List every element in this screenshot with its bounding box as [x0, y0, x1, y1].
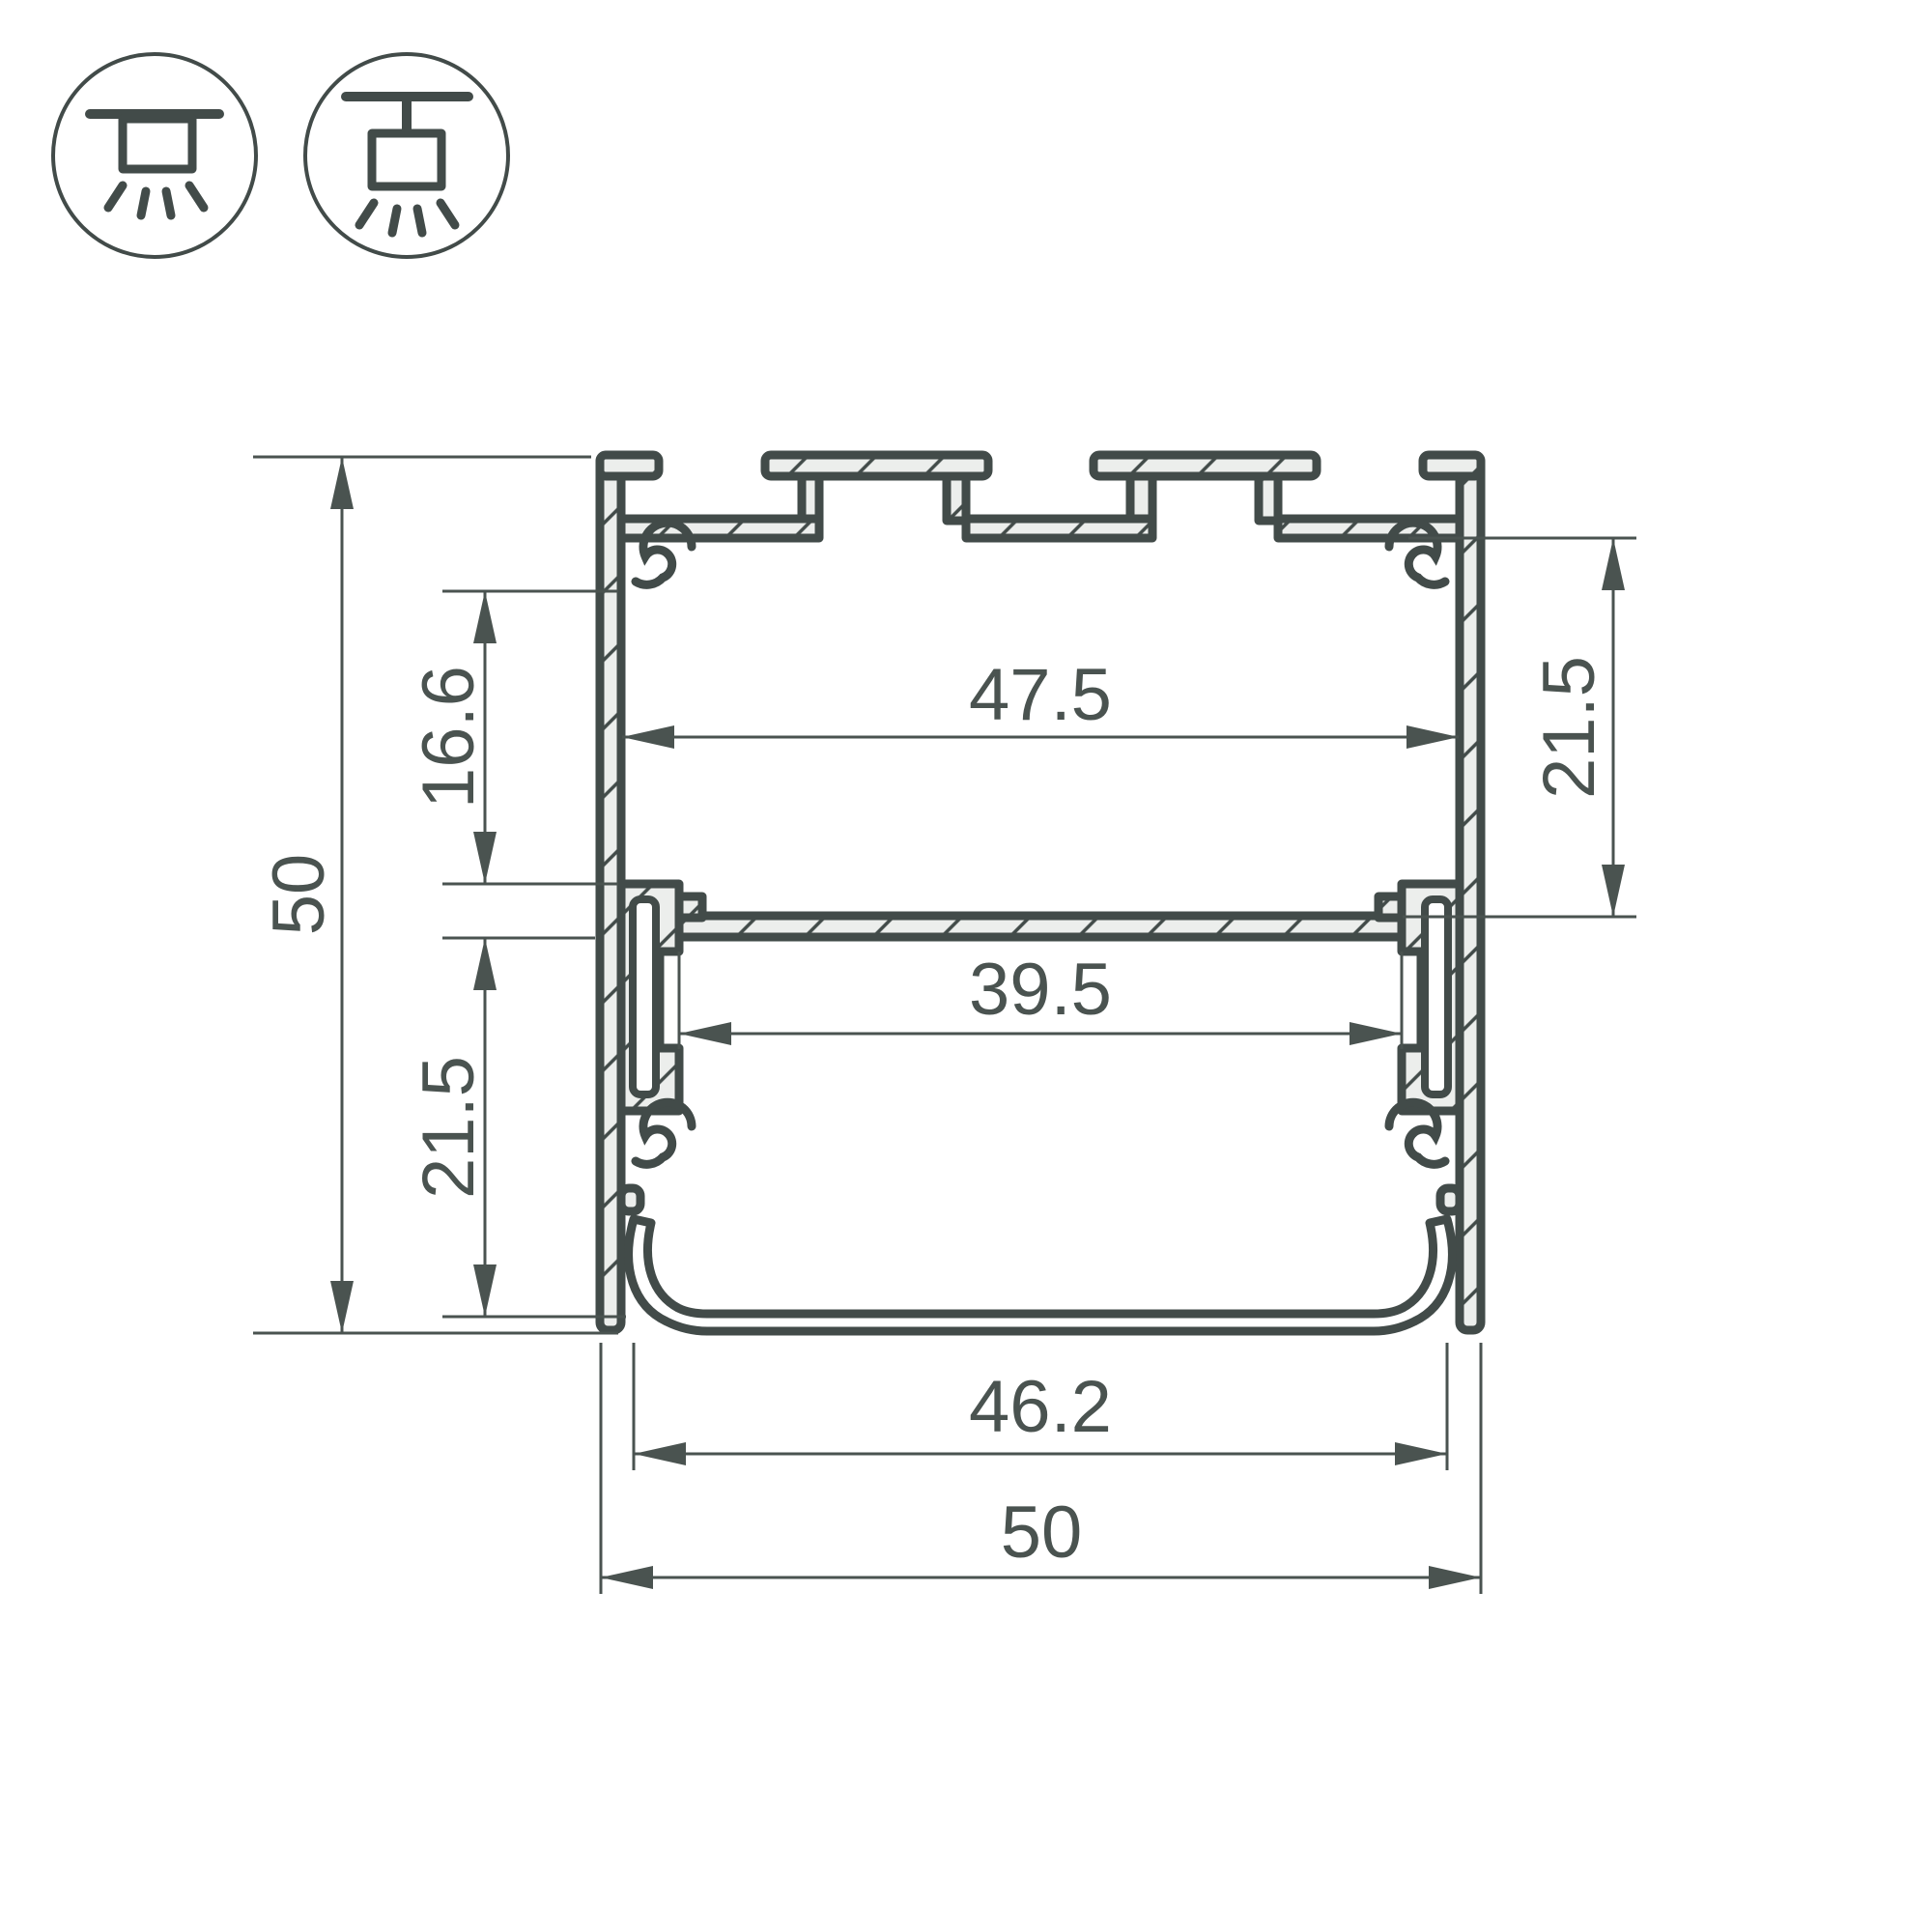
- clip-slot: [1425, 899, 1448, 1094]
- light-ray: [141, 191, 146, 215]
- arrowhead-icon: [679, 1022, 731, 1045]
- arrowhead-icon: [330, 457, 354, 509]
- dim-diffuser-width: 46.2: [634, 1343, 1447, 1470]
- light-ray: [108, 185, 123, 208]
- arrowhead-icon: [473, 591, 497, 643]
- diffuser-tooth: [1440, 1188, 1460, 1211]
- light-ray: [417, 209, 422, 233]
- light-ray: [189, 185, 204, 208]
- dim-right-inner-height-label: 21.5: [1528, 656, 1610, 799]
- arrowhead-icon: [473, 832, 497, 884]
- diffuser-tooth: [621, 1188, 640, 1211]
- dim-overall-height: 50: [253, 457, 618, 1333]
- arrowhead-icon: [1602, 538, 1625, 590]
- dim-overall-height-label: 50: [258, 854, 340, 936]
- profile-cross-section-drawing: 50 16.6 21.5 47.5: [0, 0, 1932, 1932]
- dim-right-inner-height: 21.5: [1403, 538, 1636, 917]
- surface-mount-icon: [53, 54, 256, 257]
- clip-slot: [633, 899, 656, 1094]
- top-cap-b: [1094, 455, 1317, 476]
- dim-led-shelf-width: 39.5: [679, 949, 1402, 1049]
- mounting-icons: [53, 54, 508, 257]
- cap-stem: [1130, 476, 1152, 521]
- cap-stem: [802, 476, 819, 521]
- top-web-mid: [966, 519, 1152, 538]
- light-ray: [359, 203, 374, 225]
- dim-top-inner-width: 47.5: [622, 654, 1459, 749]
- profile-section: [600, 455, 1481, 1331]
- led-shelf: [679, 916, 1402, 937]
- arrowhead-icon: [1406, 725, 1459, 749]
- dim-overall-width-label: 50: [1001, 1492, 1083, 1574]
- dim-diffuser-width-label: 46.2: [969, 1366, 1112, 1448]
- arrowhead-icon: [1602, 865, 1625, 917]
- arrowhead-icon: [473, 938, 497, 990]
- dim-lower-inner-height: 21.5: [408, 938, 626, 1317]
- arrowhead-icon: [622, 725, 674, 749]
- profile-box: [123, 119, 192, 169]
- top-cap-left: [600, 455, 659, 476]
- arrowhead-icon: [1429, 1566, 1481, 1589]
- dim-upper-inner-height-label: 16.6: [408, 666, 490, 809]
- arrowhead-icon: [330, 1281, 354, 1333]
- light-ray: [166, 191, 171, 215]
- dim-upper-inner-height: 16.6: [408, 591, 618, 884]
- profile-material: [600, 455, 1481, 1330]
- screw-bosses: [636, 523, 1445, 1164]
- top-cap-right: [1423, 455, 1481, 476]
- cap-riser: [947, 476, 966, 521]
- led-shelf-lip: [1378, 896, 1402, 918]
- light-ray: [392, 209, 397, 233]
- arrowhead-icon: [601, 1566, 653, 1589]
- arrowhead-icon: [1350, 1022, 1402, 1045]
- led-shelf-lip: [679, 896, 702, 918]
- light-ray: [440, 203, 455, 225]
- page: 50 16.6 21.5 47.5: [0, 0, 1932, 1932]
- profile-box: [372, 133, 441, 186]
- arrowhead-icon: [634, 1442, 686, 1465]
- pendant-mount-icon: [305, 54, 508, 257]
- arrowhead-icon: [1395, 1442, 1447, 1465]
- cap-riser: [1259, 476, 1278, 521]
- dim-led-shelf-width-label: 39.5: [969, 949, 1112, 1031]
- arrowhead-icon: [473, 1264, 497, 1317]
- dim-top-inner-width-label: 47.5: [969, 654, 1112, 736]
- dim-lower-inner-height-label: 21.5: [408, 1056, 490, 1199]
- diffuser-cover: [629, 1219, 1453, 1331]
